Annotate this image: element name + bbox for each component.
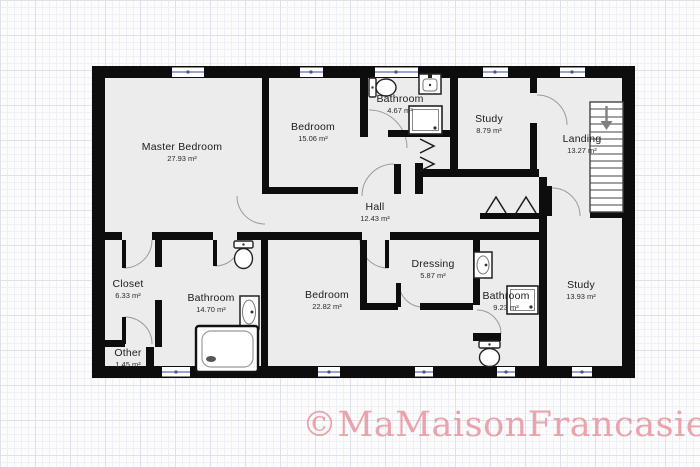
- floor-plan-page: Master Bedroom 27.93 m² Bedroom 15.06 m²…: [0, 0, 700, 467]
- sink-icon: [419, 73, 441, 94]
- floor-plan-drawing: [0, 0, 700, 467]
- toilet-icon: [234, 241, 253, 269]
- shower-icon: [507, 286, 538, 314]
- bathtub-icon: [196, 326, 258, 372]
- stairs-icon: [590, 102, 623, 212]
- shower-icon: [409, 106, 442, 134]
- sink-icon: [474, 252, 492, 278]
- sink-icon: [240, 296, 259, 329]
- toilet-icon: [369, 78, 396, 97]
- toilet-icon: [479, 341, 500, 367]
